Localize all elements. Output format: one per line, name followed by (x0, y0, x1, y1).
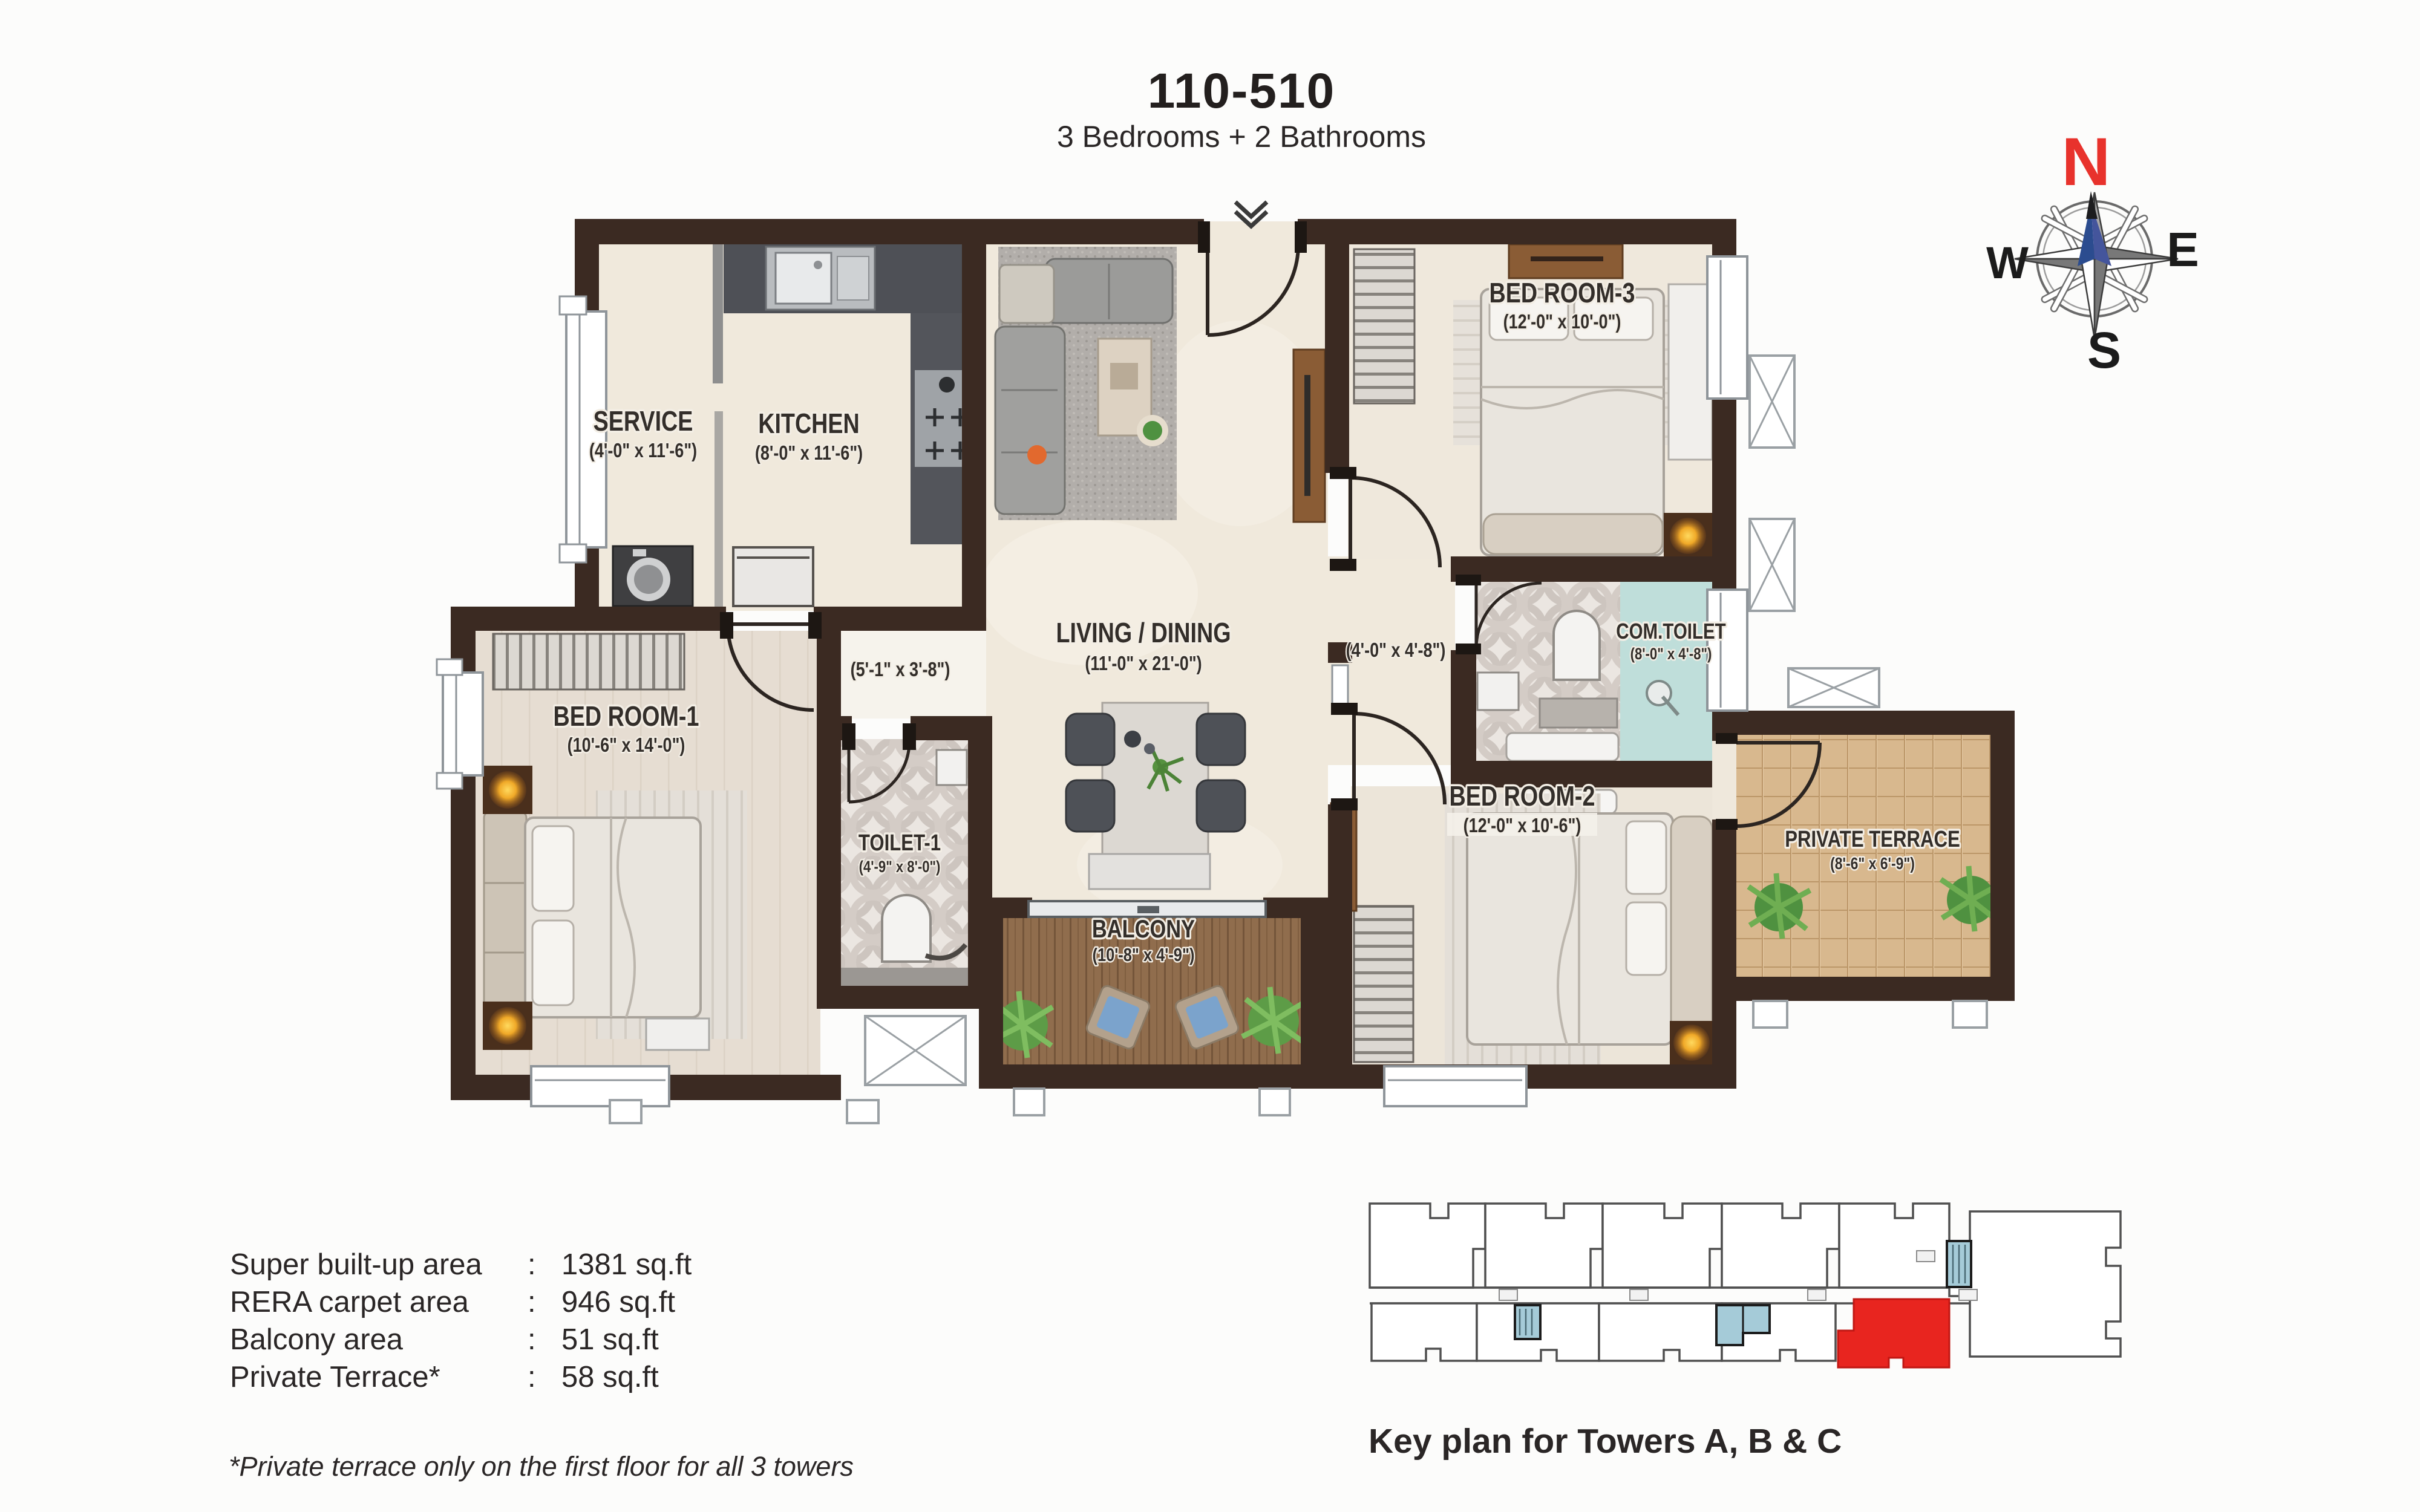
svg-text:Key plan for Towers A, B & C: Key plan for Towers A, B & C (1369, 1422, 1842, 1461)
svg-text:(10'-8" x 4'-9"): (10'-8" x 4'-9") (1093, 945, 1195, 966)
svg-text:110-510: 110-510 (1148, 64, 1335, 119)
svg-text:BED ROOM-1: BED ROOM-1 (554, 700, 699, 731)
svg-text:(12'-0" x 10'-6"): (12'-0" x 10'-6") (1463, 815, 1581, 837)
svg-text:(8'-0" x 11'-6"): (8'-0" x 11'-6") (755, 443, 863, 464)
svg-text:(4'-0" x 4'-8"): (4'-0" x 4'-8") (1346, 640, 1446, 662)
svg-text:KITCHEN: KITCHEN (758, 408, 860, 438)
svg-text:BED ROOM-2: BED ROOM-2 (1450, 780, 1595, 811)
svg-text:S: S (2087, 322, 2121, 379)
svg-text:Balcony area: Balcony area (230, 1323, 404, 1356)
svg-text:E: E (2167, 223, 2199, 276)
svg-text:946 sq.ft: 946 sq.ft (561, 1286, 675, 1318)
svg-text:W: W (1986, 238, 2029, 288)
svg-text:LIVING / DINING: LIVING / DINING (1056, 617, 1231, 648)
svg-text:(4'-9" x 8'-0"): (4'-9" x 8'-0") (859, 858, 941, 876)
svg-text:Super built-up area: Super built-up area (230, 1248, 483, 1281)
svg-text:1381 sq.ft: 1381 sq.ft (561, 1248, 692, 1281)
svg-text:(8'-6" x 6'-9"): (8'-6" x 6'-9") (1830, 855, 1915, 873)
svg-text:SERVICE: SERVICE (594, 405, 693, 436)
svg-text:TOILET-1: TOILET-1 (858, 830, 941, 856)
svg-text::: : (528, 1361, 536, 1393)
svg-text:(12'-0" x 10'-0"): (12'-0" x 10'-0") (1503, 311, 1621, 333)
svg-text:(10'-6" x 14'-0"): (10'-6" x 14'-0") (567, 735, 685, 757)
svg-text:COM.TOILET: COM.TOILET (1616, 619, 1725, 643)
svg-text:3 Bedrooms + 2 Bathrooms: 3 Bedrooms + 2 Bathrooms (1057, 120, 1426, 154)
svg-text:BED ROOM-3: BED ROOM-3 (1490, 277, 1635, 308)
svg-text:51 sq.ft: 51 sq.ft (561, 1323, 659, 1356)
svg-text:RERA carpet area: RERA carpet area (230, 1286, 469, 1318)
svg-text:*Private terrace only on the f: *Private terrace only on the first floor… (229, 1451, 854, 1482)
svg-text:BALCONY: BALCONY (1092, 915, 1195, 943)
svg-text:(11'-0" x 21'-0"): (11'-0" x 21'-0") (1085, 653, 1202, 675)
svg-text:PRIVATE TERRACE: PRIVATE TERRACE (1785, 827, 1960, 852)
svg-text::: : (528, 1286, 536, 1318)
svg-text::: : (528, 1248, 536, 1281)
svg-text:(4'-0" x 11'-6"): (4'-0" x 11'-6") (589, 440, 697, 462)
svg-text:(5'-1" x 3'-8"): (5'-1" x 3'-8") (851, 659, 950, 681)
svg-text:N: N (2062, 124, 2111, 200)
svg-text:58 sq.ft: 58 sq.ft (561, 1361, 659, 1393)
svg-text::: : (528, 1323, 536, 1356)
svg-text:Private Terrace*: Private Terrace* (230, 1361, 440, 1393)
svg-text:(8'-0" x 4'-8"): (8'-0" x 4'-8") (1630, 645, 1712, 663)
